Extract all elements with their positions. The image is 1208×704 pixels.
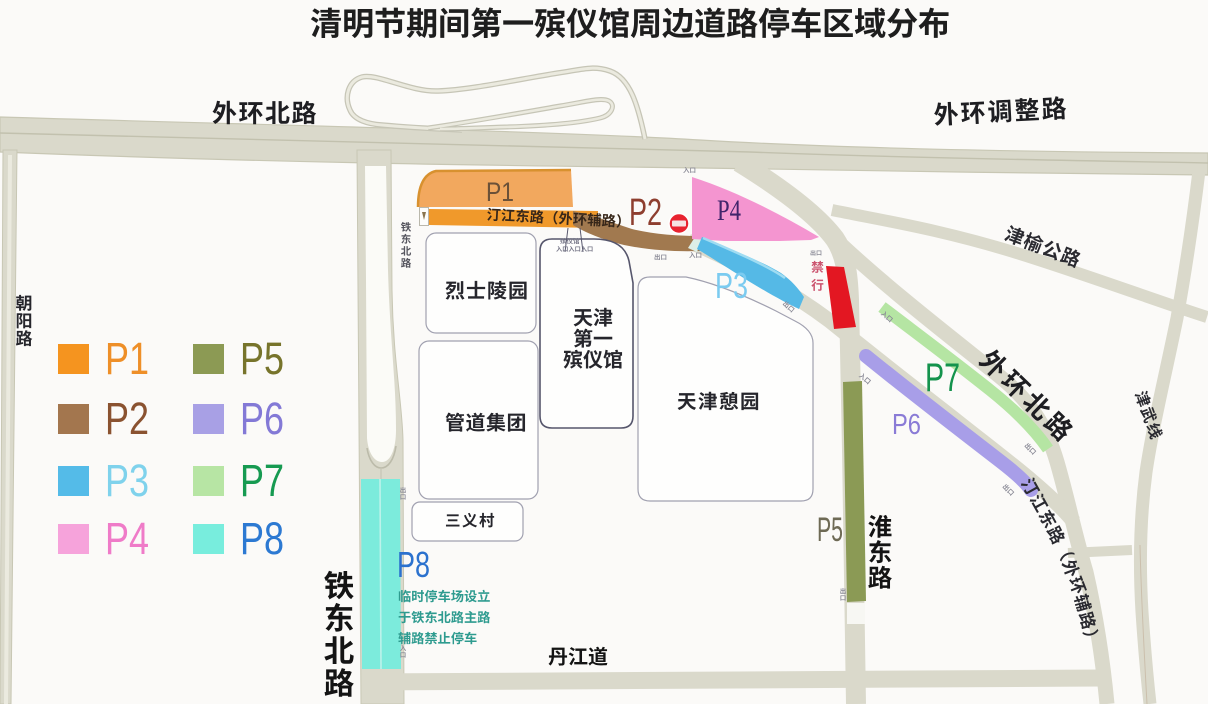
svg-text:P6: P6 [892, 409, 921, 441]
svg-text:P3: P3 [105, 455, 149, 506]
svg-text:P1: P1 [486, 177, 514, 207]
svg-text:P4: P4 [105, 513, 149, 564]
svg-text:P7: P7 [240, 455, 284, 506]
svg-text:P5: P5 [240, 333, 284, 384]
svg-text:P4: P4 [717, 194, 741, 227]
svg-text:P3: P3 [715, 265, 748, 306]
svg-text:P2: P2 [629, 192, 662, 234]
svg-text:P1: P1 [105, 333, 149, 384]
svg-text:P6: P6 [240, 393, 284, 444]
svg-text:P8: P8 [397, 544, 430, 585]
svg-text:P7: P7 [925, 356, 960, 400]
svg-text:P8: P8 [240, 513, 284, 564]
svg-text:P2: P2 [105, 393, 149, 444]
svg-text:P5: P5 [817, 511, 843, 549]
